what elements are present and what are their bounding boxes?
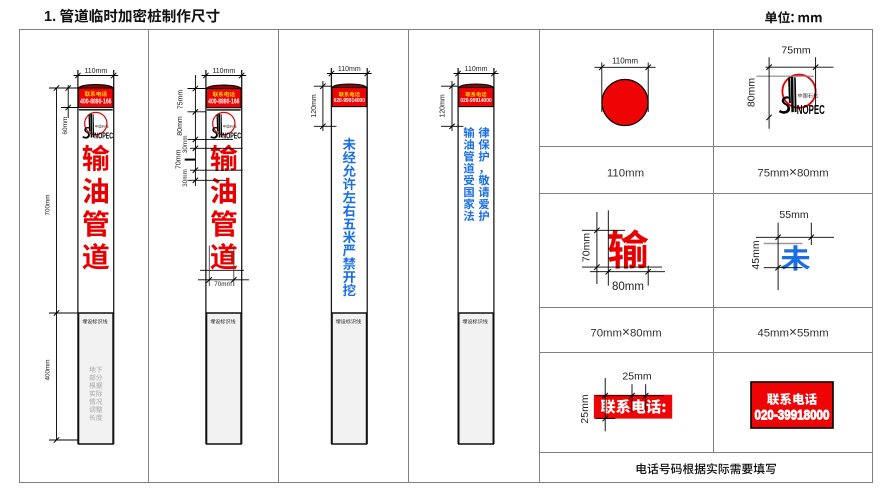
svg-text:020-39918000: 020-39918000	[755, 408, 830, 423]
svg-text:1.: 1.	[44, 9, 56, 25]
svg-text:45mm: 45mm	[750, 240, 762, 269]
svg-text:700mm: 700mm	[44, 195, 51, 216]
svg-text:25mm: 25mm	[579, 394, 591, 423]
svg-text:80mm: 80mm	[746, 78, 758, 107]
svg-text:45mm×55mm: 45mm×55mm	[757, 325, 828, 340]
svg-text:120mm: 120mm	[440, 94, 447, 118]
svg-text:75mm: 75mm	[781, 45, 810, 57]
svg-text:020-99914000: 020-99914000	[334, 98, 366, 104]
svg-text:55mm: 55mm	[779, 209, 808, 221]
svg-text:70mm: 70mm	[176, 149, 183, 169]
svg-text:400mm: 400mm	[44, 360, 51, 381]
svg-text:110mm: 110mm	[212, 68, 235, 75]
svg-text:75mm×80mm: 75mm×80mm	[757, 165, 828, 180]
svg-text:25mm: 25mm	[622, 371, 651, 383]
svg-text:75mm: 75mm	[178, 90, 185, 110]
svg-text:110mm: 110mm	[338, 66, 361, 73]
svg-text:120mm: 120mm	[311, 94, 318, 118]
svg-text:020-99914000: 020-99914000	[460, 98, 492, 104]
svg-text:70mm×80mm: 70mm×80mm	[590, 325, 661, 340]
svg-text:110mm: 110mm	[84, 68, 107, 75]
svg-text:60mm: 60mm	[62, 117, 69, 135]
svg-text:80mm: 80mm	[177, 116, 184, 136]
svg-text:70mm: 70mm	[580, 233, 592, 262]
svg-text:30mm: 30mm	[182, 135, 189, 153]
svg-text:110mm: 110mm	[612, 57, 638, 66]
svg-text:80mm: 80mm	[612, 281, 644, 293]
svg-text:110mm: 110mm	[607, 168, 644, 180]
svg-text:110mm: 110mm	[465, 66, 488, 73]
svg-text:30mm: 30mm	[182, 169, 189, 187]
svg-text:400-8890-166: 400-8890-166	[80, 96, 111, 105]
svg-text:70mm: 70mm	[214, 281, 232, 288]
svg-text:400-8890-166: 400-8890-166	[208, 97, 239, 106]
